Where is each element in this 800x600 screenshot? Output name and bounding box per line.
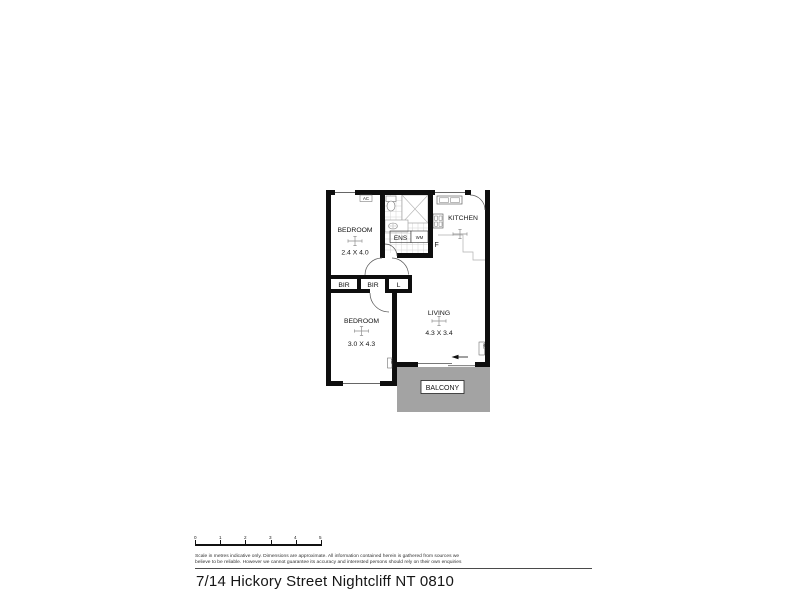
ac-label-living: AC xyxy=(482,344,486,350)
living-dims: 4.3 X 3.4 xyxy=(425,330,452,337)
wall-robe-divider xyxy=(385,275,389,293)
bedroom1-cross-marker xyxy=(348,237,362,246)
disclaimer-line2: believe to be reliable. However we canno… xyxy=(195,560,495,566)
entry-arrow-head xyxy=(452,355,459,360)
wall-robes-bottom xyxy=(326,289,370,293)
property-address: 7/14 Hickory Street Nightcliff NT 0810 xyxy=(196,573,454,590)
wall-bedroom1-ens xyxy=(380,190,385,258)
living-cross-marker xyxy=(432,317,446,326)
kitchen-sink xyxy=(437,196,462,204)
ens-label: ENS xyxy=(394,235,408,242)
wall-robe-divider xyxy=(357,275,361,293)
wall-bedroom2-bottom xyxy=(326,381,343,386)
wall-living-bottom xyxy=(475,362,490,367)
wall-ens-kitchen xyxy=(428,190,433,258)
bedroom2-dims: 3.0 X 4.3 xyxy=(348,341,375,348)
kitchen-fixtures xyxy=(433,196,485,260)
linen-door-arc xyxy=(392,258,409,275)
scale-bar: 0 1 2 3 4 5 xyxy=(195,536,327,550)
wall-living-bottom xyxy=(397,362,418,367)
bedroom1-door-arc xyxy=(365,258,382,275)
kitchen-label: KITCHEN xyxy=(448,215,478,222)
kitchen-cross-marker xyxy=(453,230,467,239)
linen-label: L xyxy=(397,282,401,289)
wall-segment xyxy=(355,190,435,195)
bir2-label: BIR xyxy=(367,282,378,289)
wall-bedroom2-bottom xyxy=(380,381,397,386)
wall-left xyxy=(326,190,331,386)
fridge-label: F xyxy=(435,242,439,249)
wall-robes-top xyxy=(326,275,412,279)
wall-linen-right xyxy=(408,275,412,293)
ens-fixtures xyxy=(385,195,428,232)
entry-arrow xyxy=(452,355,469,360)
ac-label: AC xyxy=(363,196,369,201)
wall-ens-bottom xyxy=(397,253,433,258)
floorplan: AC AC AC BEDROOM 2.4 X 4.0 ENS WM KITCHE… xyxy=(326,190,490,412)
wall-segment xyxy=(465,190,471,195)
entry-door-arc xyxy=(470,195,485,210)
scale-bar-line xyxy=(195,544,322,546)
ac-label-bedroom2: AC xyxy=(390,359,394,364)
bedroom2-cross-marker xyxy=(355,327,369,336)
divider-line xyxy=(195,568,592,569)
bedroom1-label: BEDROOM xyxy=(337,227,372,234)
disclaimer-text: Scale in metres indicative only. Dimensi… xyxy=(195,554,495,567)
bedroom2-door-arc xyxy=(370,293,389,312)
floorplan-svg: AC AC AC BEDROOM 2.4 X 4.0 ENS WM KITCHE… xyxy=(326,190,490,412)
bedroom2-label: BEDROOM xyxy=(344,318,379,325)
bir1-label: BIR xyxy=(338,282,349,289)
wall-bedroom2-living xyxy=(392,289,397,386)
wall-right xyxy=(485,190,490,367)
balcony-label: BALCONY xyxy=(426,385,460,392)
sliding-door-living xyxy=(418,363,475,365)
wm-label: WM xyxy=(416,235,424,240)
living-label: LIVING xyxy=(428,310,450,317)
bedroom1-dims: 2.4 X 4.0 xyxy=(341,250,368,257)
toilet-cistern xyxy=(386,196,396,202)
toilet-bowl xyxy=(387,201,395,211)
